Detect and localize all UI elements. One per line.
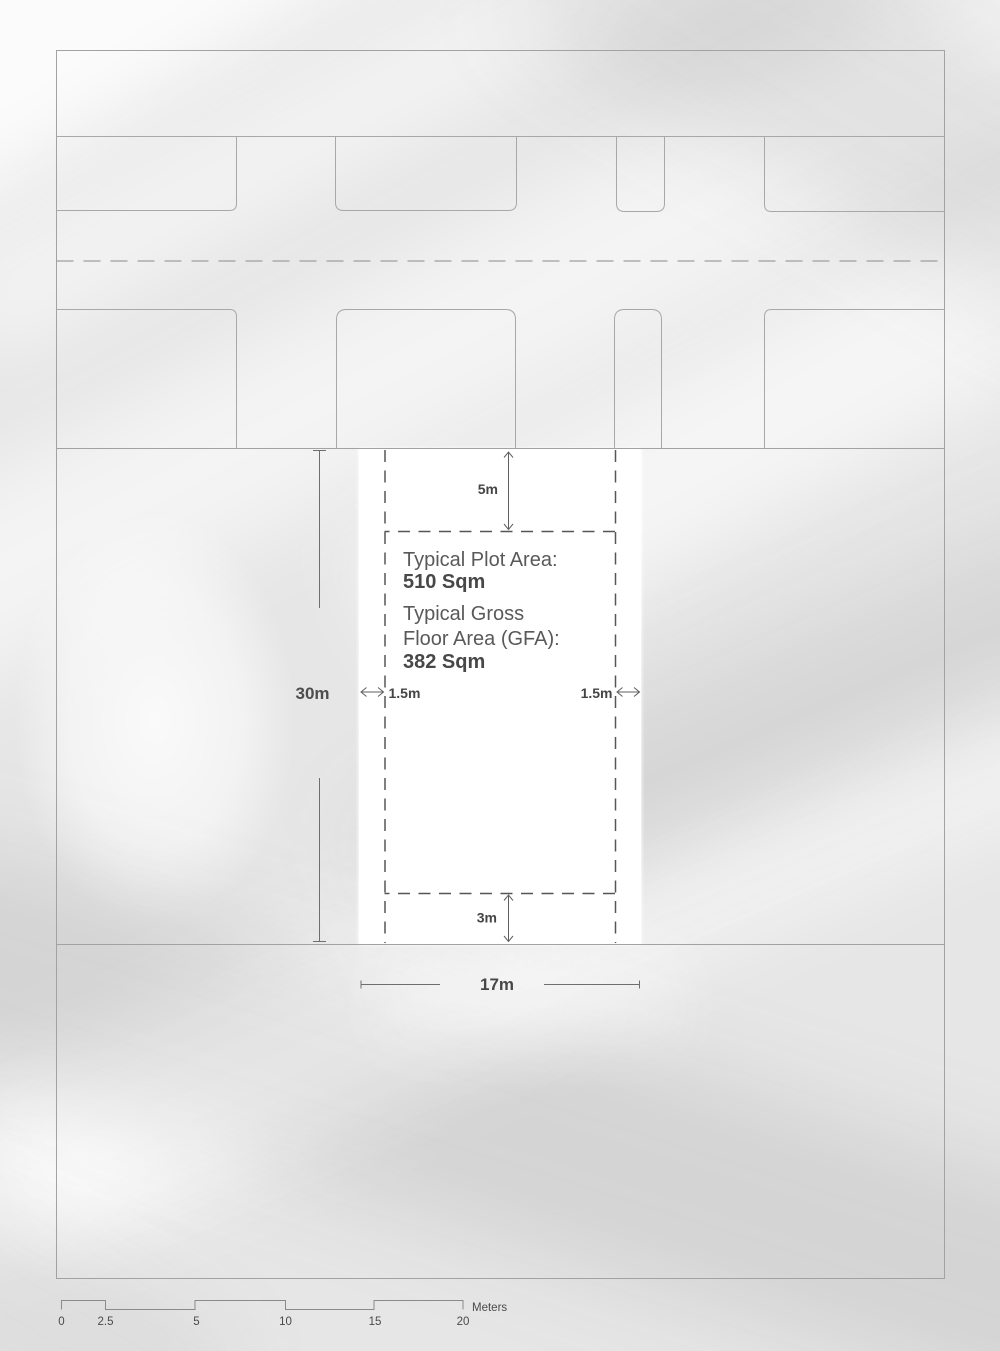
svg-text:10: 10 — [279, 1316, 292, 1328]
svg-text:30m: 30m — [295, 684, 329, 703]
svg-text:1.5m: 1.5m — [581, 685, 613, 701]
svg-text:15: 15 — [369, 1316, 382, 1328]
svg-text:5m: 5m — [478, 481, 498, 497]
svg-text:382 Sqm: 382 Sqm — [403, 651, 485, 673]
svg-text:1.5m: 1.5m — [389, 685, 421, 701]
svg-text:Typical Gross: Typical Gross — [403, 603, 524, 625]
svg-text:5: 5 — [193, 1316, 199, 1328]
svg-text:17m: 17m — [480, 975, 514, 994]
svg-text:3m: 3m — [477, 910, 497, 926]
svg-text:0: 0 — [58, 1316, 64, 1328]
svg-text:20: 20 — [457, 1316, 470, 1328]
svg-text:2.5: 2.5 — [98, 1316, 114, 1328]
svg-text:Typical Plot Area:: Typical Plot Area: — [403, 549, 558, 571]
svg-text:Meters: Meters — [472, 1302, 507, 1314]
svg-text:510 Sqm: 510 Sqm — [403, 571, 485, 593]
svg-text:Floor Area (GFA):: Floor Area (GFA): — [403, 628, 560, 650]
